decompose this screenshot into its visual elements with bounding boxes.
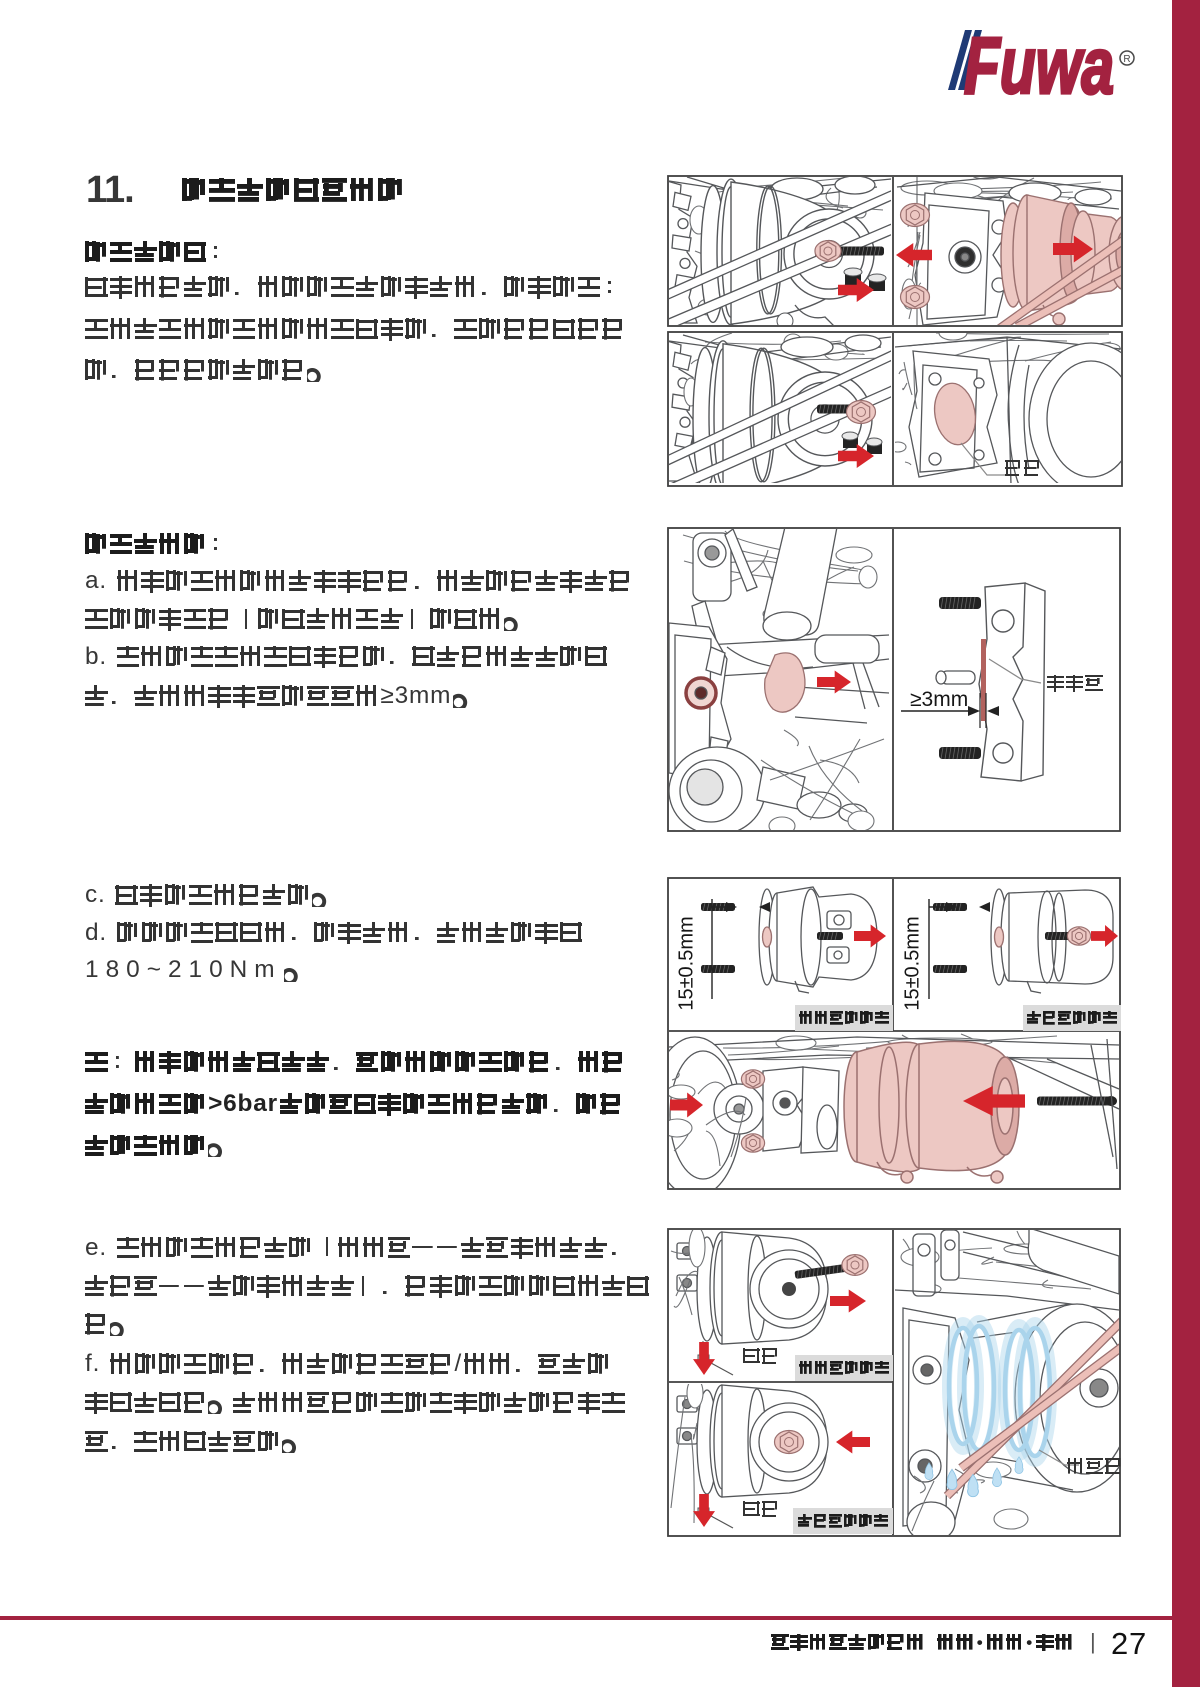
svg-text:Fuwa: Fuwa xyxy=(964,22,1114,106)
svg-text:R: R xyxy=(1123,54,1130,65)
